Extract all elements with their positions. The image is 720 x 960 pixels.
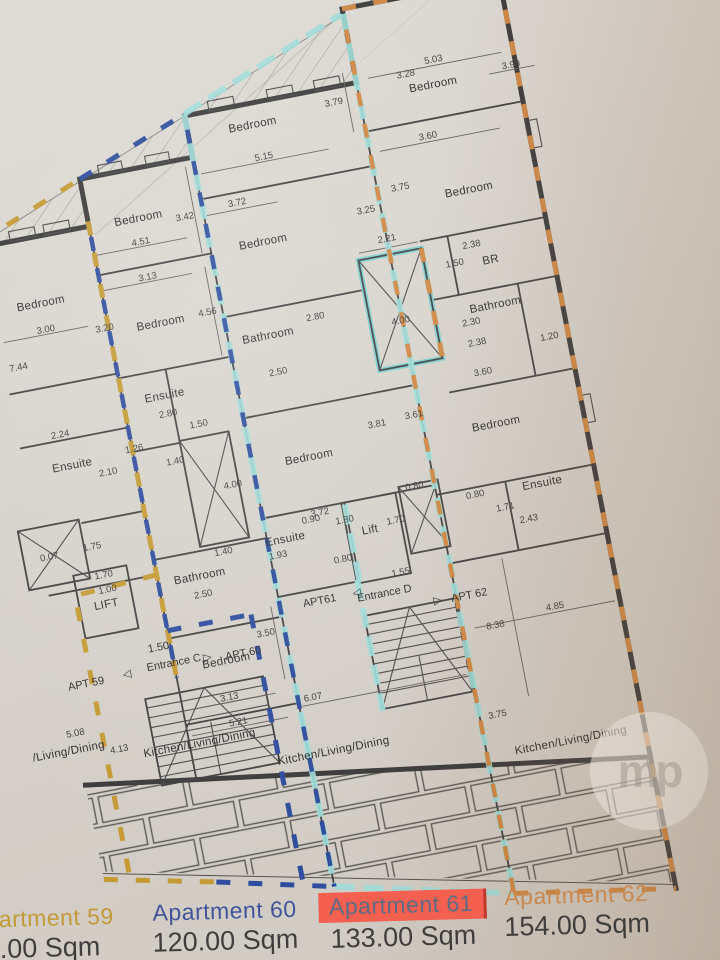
marker-label: APT61	[302, 592, 337, 610]
marker-label: Entrance D	[356, 582, 412, 604]
dim-label: 1.93	[268, 549, 288, 563]
room-label: Kitchen/Living/Dining	[514, 724, 628, 757]
dim-label: 1.71	[495, 500, 515, 514]
dim-label: 4.13	[109, 742, 129, 756]
dim-label: 2.50	[268, 365, 288, 379]
dim-label: 1.70	[386, 513, 406, 527]
room-label: Bathroom	[173, 566, 227, 588]
dim-label: 3.00	[36, 323, 56, 337]
room-label: BR	[481, 253, 500, 268]
room-label: Bedroom	[284, 447, 334, 468]
dim-label: 3.28	[396, 67, 416, 81]
room-label: Bedroom	[136, 313, 186, 334]
dim-label: 2.80	[305, 310, 325, 324]
staircase-entrance-d	[364, 598, 472, 709]
room-label: Bedroom	[471, 414, 521, 435]
room-label: Bedroom	[238, 232, 288, 253]
dim-label: 3.50	[256, 626, 276, 640]
dim-label: 3.75	[390, 180, 410, 194]
dim-label: 5.03	[423, 53, 443, 67]
dim-label: 1.20	[539, 330, 559, 344]
marker-label: ◁	[122, 667, 133, 680]
apt62-name: Apartment 62	[491, 880, 662, 912]
legend-item-apt62: Apartment 62 154.00 Sqm	[491, 880, 663, 944]
dim-label: 0.80	[333, 552, 353, 566]
dim-label: 4.00	[391, 314, 411, 328]
dim-label: 1.70	[94, 568, 114, 582]
dim-label: 1.55	[391, 565, 411, 579]
room-label: Ensuite	[51, 456, 93, 476]
apt59-name: Apartment 59	[0, 903, 122, 934]
dim-label: 0.80	[404, 479, 424, 493]
dim-label: 3.81	[367, 417, 387, 431]
dim-label: 5.21	[228, 715, 248, 729]
apt62-area: 154.00 Sqm	[492, 908, 663, 944]
dim-label: 3.60	[418, 129, 438, 143]
dim-label: 3.25	[356, 203, 376, 217]
marker-label: ▷	[432, 594, 443, 607]
dim-label: 7.44	[8, 361, 28, 375]
floor-plan-svg: BedroomEnsuiteLIFT/Living/DiningBedroomB…	[0, 0, 720, 960]
apt59-area: 6.00 Sqm	[0, 931, 123, 960]
room-label: /Living/Dining	[32, 739, 106, 765]
plan-group: BedroomEnsuiteLIFT/Living/DiningBedroomB…	[0, 0, 694, 960]
dim-label: 0.90	[301, 513, 321, 527]
room-labels: BedroomEnsuiteLIFT/Living/DiningBedroomB…	[0, 66, 628, 848]
dim-label: 2.38	[467, 336, 487, 350]
room-label: Bedroom	[16, 293, 66, 314]
room-label: Bathroom	[241, 325, 295, 347]
dim-label: 0.07	[39, 550, 59, 564]
dim-label: 2.30	[461, 315, 481, 329]
pencil-line	[360, 0, 430, 62]
room-label: Bedroom	[444, 180, 494, 201]
partition-walls	[0, 101, 628, 746]
apt61-name: Apartment 61	[319, 888, 487, 923]
dim-label: 1.75	[82, 540, 102, 554]
dimension-lines	[0, 37, 652, 782]
dim-label: 8.38	[485, 618, 505, 632]
dim-label: 0.80	[465, 488, 485, 502]
room-label: Lift	[361, 523, 380, 538]
room-label: Kitchen/Living/Dining	[277, 734, 391, 767]
dim-label: 5.15	[254, 150, 274, 164]
dim-label: 3.75	[487, 708, 507, 722]
room-label: Ensuite	[264, 530, 306, 550]
marker-label: 1.50	[147, 640, 170, 656]
apt60-area: 120.00 Sqm	[140, 923, 311, 959]
room-label: Kitchen/Living/Dining	[143, 727, 257, 760]
dim-label: 3.13	[138, 270, 158, 284]
dim-label: 4.51	[131, 235, 151, 249]
room-label: LIFT	[93, 597, 120, 614]
marker-label: APT 59	[67, 675, 105, 694]
legend-item-apt61: Apartment 61 133.00 Sqm	[317, 888, 489, 955]
dim-label: 5.08	[65, 726, 85, 740]
dim-label: 3.79	[324, 96, 344, 110]
dim-label: 1.50	[445, 256, 465, 270]
dim-label: 1.50	[189, 417, 209, 431]
dim-label: 4.85	[545, 600, 565, 614]
legend-item-apt60: Apartment 60 120.00 Sqm	[139, 895, 311, 959]
dim-label: 1.40	[213, 545, 233, 559]
dim-label: 1.80	[335, 513, 355, 527]
apt60-name: Apartment 60	[139, 895, 310, 927]
dim-label: 2.21	[377, 232, 397, 246]
room-label: Bathroom	[469, 294, 523, 316]
dim-label: 1.26	[124, 442, 144, 456]
legend-item-apt59: Apartment 59 6.00 Sqm	[0, 903, 123, 960]
room-label: Bedroom	[228, 115, 278, 136]
dim-label: 3.42	[175, 210, 195, 224]
dim-label: 1.40	[165, 454, 185, 468]
room-label: Ensuite	[144, 386, 186, 406]
dim-label: 3.60	[473, 365, 493, 379]
dim-label: 2.10	[98, 465, 118, 479]
staircase-entrance-c	[145, 676, 280, 785]
dim-label: 1.00	[97, 583, 117, 597]
dim-label: 2.43	[519, 512, 539, 526]
apt61-area: 133.00 Sqm	[318, 919, 489, 955]
marker-label: ▷	[202, 651, 213, 664]
floorplan-photo: BedroomEnsuiteLIFT/Living/DiningBedroomB…	[0, 0, 720, 960]
dim-label: 3.13	[219, 690, 239, 704]
dim-label: 2.50	[193, 588, 213, 602]
dim-label: 2.38	[461, 238, 481, 252]
